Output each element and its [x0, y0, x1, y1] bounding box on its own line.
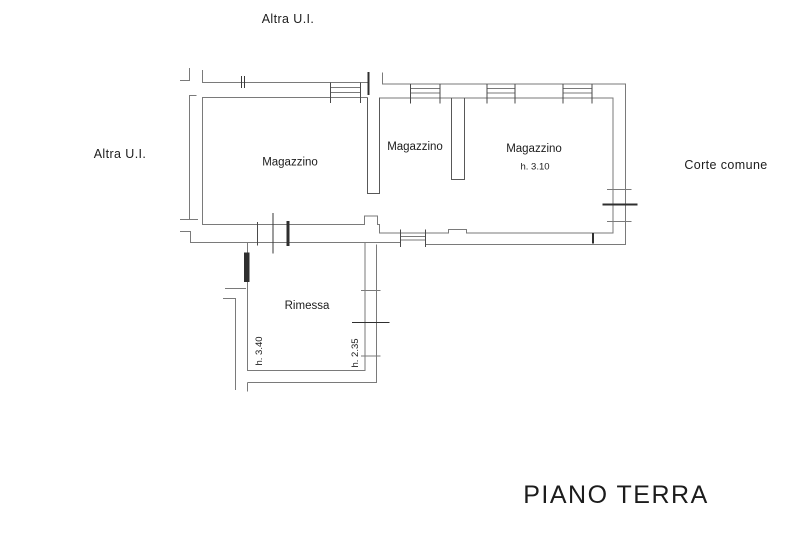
rimessa-door-fill [244, 253, 250, 283]
label-rimessa: Rimessa [285, 300, 330, 312]
partition-mag1-mag2 [368, 98, 380, 194]
label-magazzino-3-height: h. 3.10 [520, 162, 549, 173]
label-magazzino-2: Magazzino [387, 141, 443, 153]
top-wall-outer-left [203, 70, 368, 83]
window-jambs [401, 230, 426, 248]
window-jambs [361, 291, 381, 357]
main-block-walls [180, 68, 626, 245]
label-altra-ui-left: Altra U.I. [94, 147, 147, 161]
window-symbol-right-wall [603, 190, 638, 222]
door-symbol-magazzino-rimessa [258, 213, 289, 254]
window-jambs [487, 84, 515, 104]
window-symbol-top-1 [331, 83, 361, 104]
label-corte-comune: Corte comune [684, 158, 767, 172]
window-hatch [487, 89, 515, 94]
window-symbol-bottom-wall [401, 230, 426, 248]
neighbor-boundary-marks [223, 289, 246, 391]
window-jambs [411, 84, 441, 104]
rimessa-walls [248, 243, 377, 392]
floor-plan-canvas: Altra U.I. Altra U.I. Corte comune Magaz… [0, 0, 800, 533]
window-hatch [411, 89, 441, 94]
label-magazzino-3: Magazzino [506, 143, 562, 155]
left-boundary-wall [180, 96, 198, 220]
partition-mag2-mag3 [452, 98, 465, 180]
label-altra-ui-top: Altra U.I. [262, 12, 315, 26]
window-hatch [401, 237, 426, 241]
label-rimessa-height-left: h. 3.40 [254, 336, 265, 365]
window-jambs [563, 84, 592, 104]
label-magazzino-1: Magazzino [262, 157, 318, 169]
window-symbol-top-2 [411, 84, 441, 104]
floor-plan-drawing: Altra U.I. Altra U.I. Corte comune Magaz… [0, 0, 800, 533]
window-symbol-top-3 [487, 84, 515, 104]
plan-title: PIANO TERRA [523, 481, 709, 509]
window-hatch [563, 89, 592, 94]
altra-ui-corner-mark [180, 68, 190, 81]
window-hatch [331, 88, 361, 93]
window-symbol-top-4 [563, 84, 592, 104]
neighbor-wall [223, 299, 236, 391]
window-jambs [607, 190, 632, 222]
label-rimessa-height-right: h. 2.35 [350, 338, 361, 367]
bottom-wall-outer-left [180, 232, 401, 243]
